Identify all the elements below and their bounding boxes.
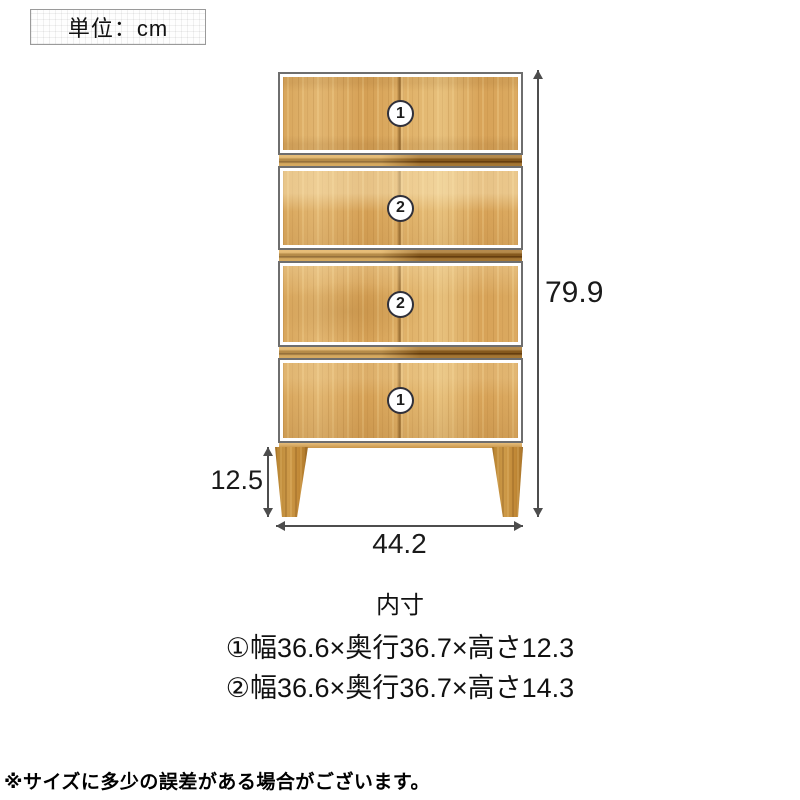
drawer-1-number-badge: 1 (387, 100, 414, 127)
chest-left-leg (275, 447, 308, 517)
height-dimension-label: 79.9 (545, 276, 603, 310)
drawer-4: 1 (278, 358, 523, 443)
width-dimension-label: 44.2 (276, 528, 523, 560)
frame-strip-1 (279, 155, 522, 166)
inner-dimension-spec-2: ②幅36.6×奥行36.7×高さ14.3 (0, 668, 800, 708)
drawer-2-front: 2 (283, 171, 518, 245)
drawer-4-front: 1 (283, 363, 518, 438)
inner-dimensions-block: 内寸 ①幅36.6×奥行36.7×高さ12.3 ②幅36.6×奥行36.7×高さ… (0, 585, 800, 708)
chest-bottom-edge (279, 443, 522, 448)
unit-label: 単位：cm (68, 11, 168, 43)
unit-label-box: 単位：cm (30, 9, 206, 45)
frame-strip-3 (279, 347, 522, 358)
drawer-2: 2 (278, 166, 523, 250)
drawer-1-front: 1 (283, 77, 518, 150)
leg-height-dimension-label: 12.5 (205, 465, 263, 496)
drawer-3: 2 (278, 261, 523, 347)
drawer-2-number-badge: 2 (387, 195, 414, 222)
size-disclaimer-note: ※サイズに多少の誤差がある場合がございます。 (4, 767, 430, 794)
leg-height-dimension-arrow (263, 447, 273, 517)
drawer-4-number-badge: 1 (387, 387, 414, 414)
inner-dimensions-title: 内寸 (0, 585, 800, 620)
height-dimension-arrow (533, 70, 543, 517)
inner-dimension-spec-1: ①幅36.6×奥行36.7×高さ12.3 (0, 628, 800, 668)
drawer-1: 1 (278, 72, 523, 155)
drawer-3-front: 2 (283, 266, 518, 342)
chest-right-leg (492, 447, 523, 517)
drawer-3-number-badge: 2 (387, 291, 414, 318)
frame-strip-2 (279, 250, 522, 261)
